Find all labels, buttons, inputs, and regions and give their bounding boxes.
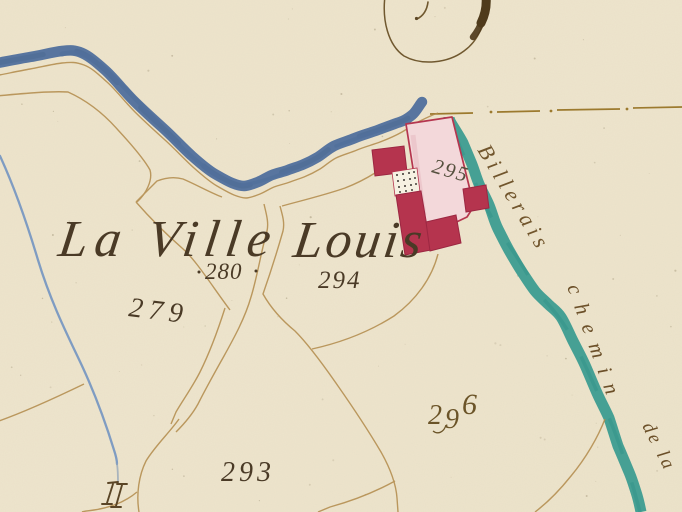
svg-text:293: 293 — [221, 457, 275, 488]
svg-text:280: 280 — [205, 259, 243, 284]
svg-text:La Ville: La Ville — [54, 210, 281, 268]
svg-text:294: 294 — [318, 267, 362, 294]
svg-text:Louis: Louis — [289, 211, 429, 269]
